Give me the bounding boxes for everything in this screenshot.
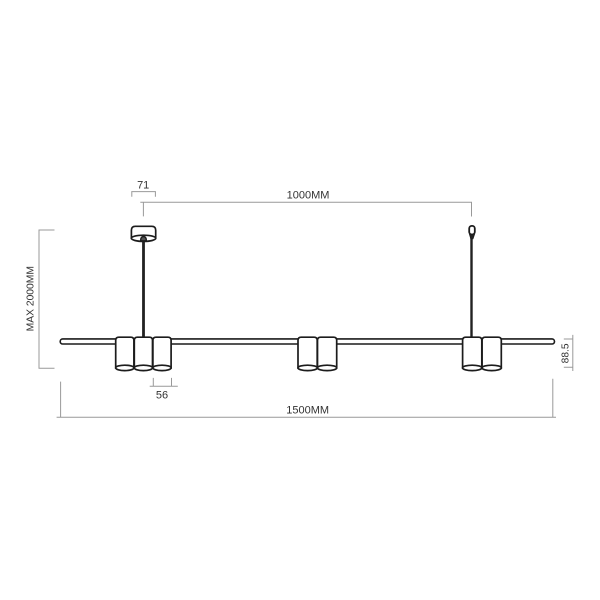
- svg-text:56: 56: [156, 390, 168, 402]
- svg-text:88.5: 88.5: [561, 343, 572, 363]
- svg-text:1500MM: 1500MM: [286, 404, 329, 416]
- svg-text:71: 71: [137, 179, 149, 191]
- svg-text:1000MM: 1000MM: [287, 190, 330, 202]
- svg-text:MAX 2000MM: MAX 2000MM: [26, 266, 37, 331]
